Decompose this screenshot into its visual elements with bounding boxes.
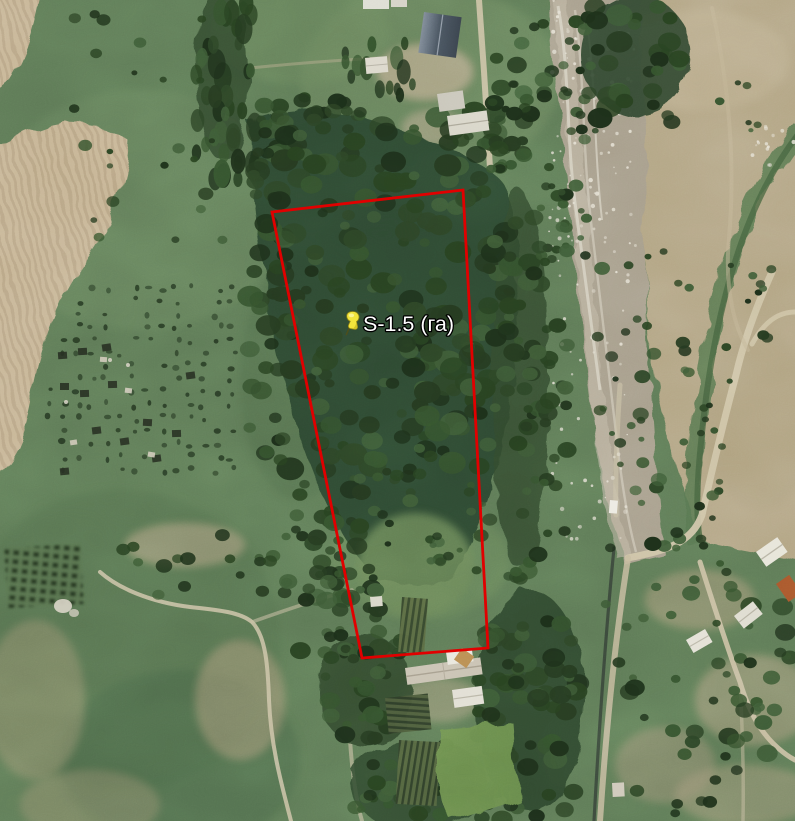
- satellite-map[interactable]: S-1.5 (га): [0, 0, 795, 821]
- map-viewport[interactable]: S-1.5 (га): [0, 0, 795, 821]
- pin-label: S-1.5 (га): [363, 312, 454, 336]
- grain-overlay: [0, 0, 795, 821]
